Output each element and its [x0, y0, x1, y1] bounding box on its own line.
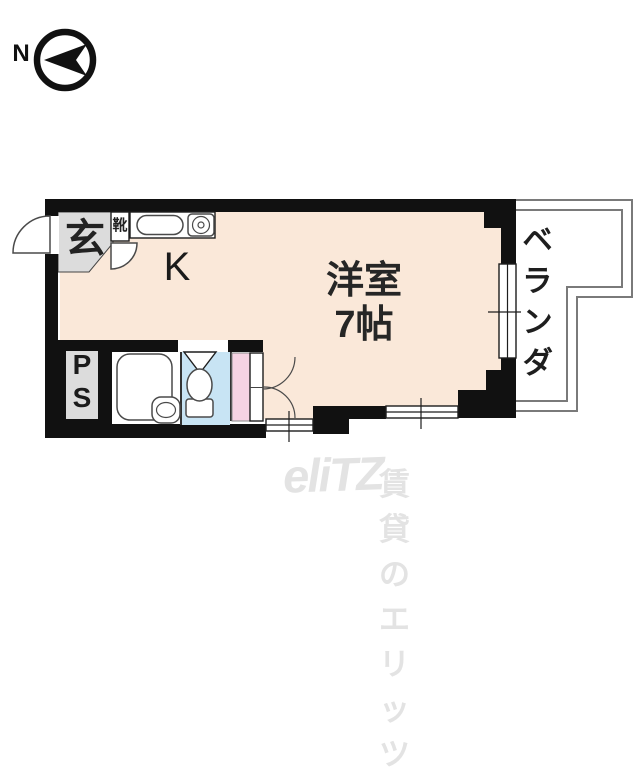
genkan-label: 玄: [62, 219, 108, 259]
kitchen-counter: [130, 212, 215, 238]
floorplan-page: N 玄 靴 K 洋室7帖 ベランダ P S eliTZ 賃貸のエリッツ: [0, 0, 640, 640]
toilet-bowl: [187, 369, 212, 401]
watermark-text: 賃貸のエリッツ: [379, 459, 411, 774]
wall-top: [45, 199, 516, 212]
veranda-label: ベランダ: [519, 223, 550, 413]
kitchen-label: K: [152, 247, 202, 287]
toilet-doorway: [178, 340, 228, 352]
closet-area: [232, 353, 250, 421]
pipe-space-label-p: P: [64, 351, 100, 379]
bathroom: [117, 354, 180, 423]
toilet: [186, 369, 213, 417]
north-label: N: [5, 42, 37, 66]
shoe-cabinet-label: 靴: [111, 218, 129, 233]
main-room-size: 7帖: [334, 304, 393, 346]
entrance-door: [13, 216, 50, 253]
entrance-door-swing-arc: [13, 216, 50, 253]
main-room-name: 洋室: [326, 260, 402, 302]
main-room-label: 洋室7帖: [294, 259, 434, 347]
wall-bottom: [45, 424, 266, 438]
stove: [188, 214, 214, 236]
watermark-logo: eliTZ: [282, 445, 384, 503]
kitchen-sink: [137, 216, 183, 235]
pipe-space-label-s: S: [64, 384, 100, 412]
north-compass-icon: [37, 32, 93, 88]
